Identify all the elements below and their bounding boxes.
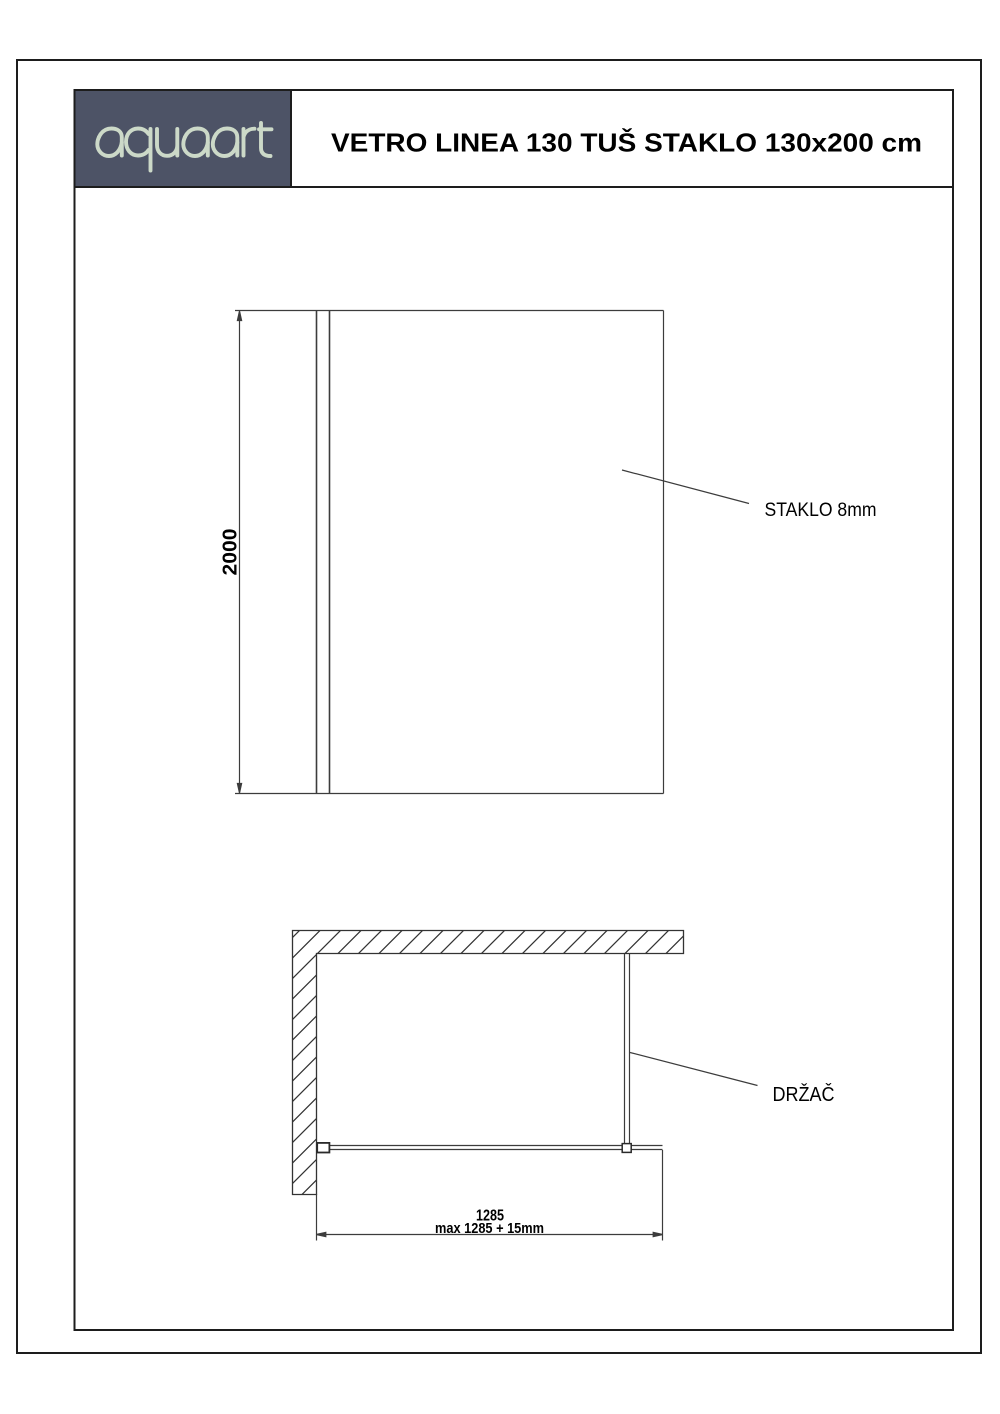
svg-text:STAKLO 8mm: STAKLO 8mm <box>765 499 877 521</box>
svg-text:DRŽAČ: DRŽAČ <box>773 1083 835 1106</box>
svg-text:max 1285 + 15mm: max 1285 + 15mm <box>435 1221 544 1237</box>
svg-text:2000: 2000 <box>220 529 242 576</box>
svg-text:VETRO LINEA 130 TUŠ STAKLO 130: VETRO LINEA 130 TUŠ STAKLO 130x200 cm <box>331 128 922 158</box>
